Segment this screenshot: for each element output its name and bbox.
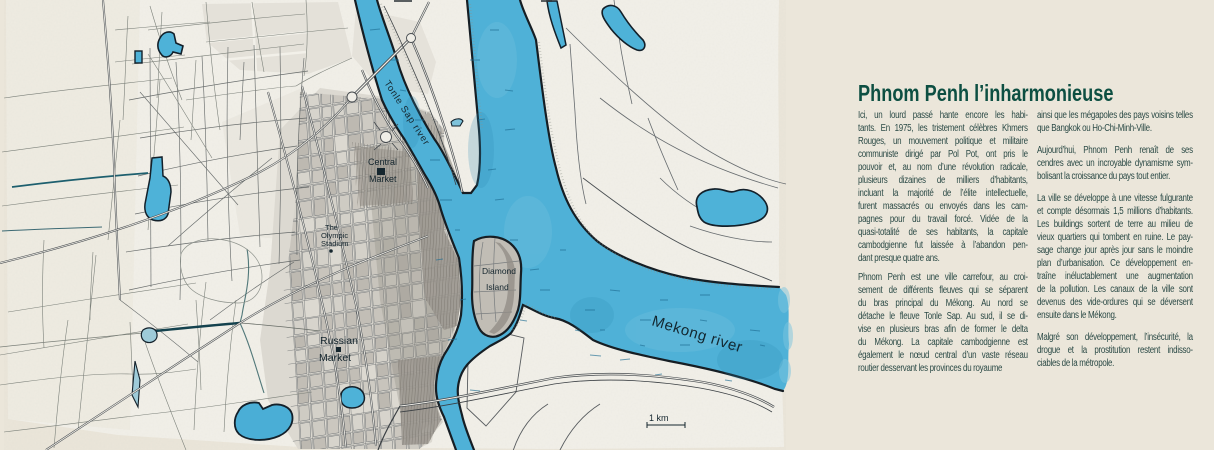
svg-text:Russian: Russian bbox=[320, 335, 358, 347]
svg-text:1 km: 1 km bbox=[649, 413, 669, 423]
svg-text:Diamond: Diamond bbox=[482, 266, 516, 276]
svg-text:Market: Market bbox=[319, 352, 351, 364]
svg-text:Stadium: Stadium bbox=[321, 239, 349, 248]
svg-text:Central: Central bbox=[368, 157, 397, 167]
svg-text:Market: Market bbox=[369, 174, 397, 184]
svg-text:Island: Island bbox=[486, 282, 509, 292]
